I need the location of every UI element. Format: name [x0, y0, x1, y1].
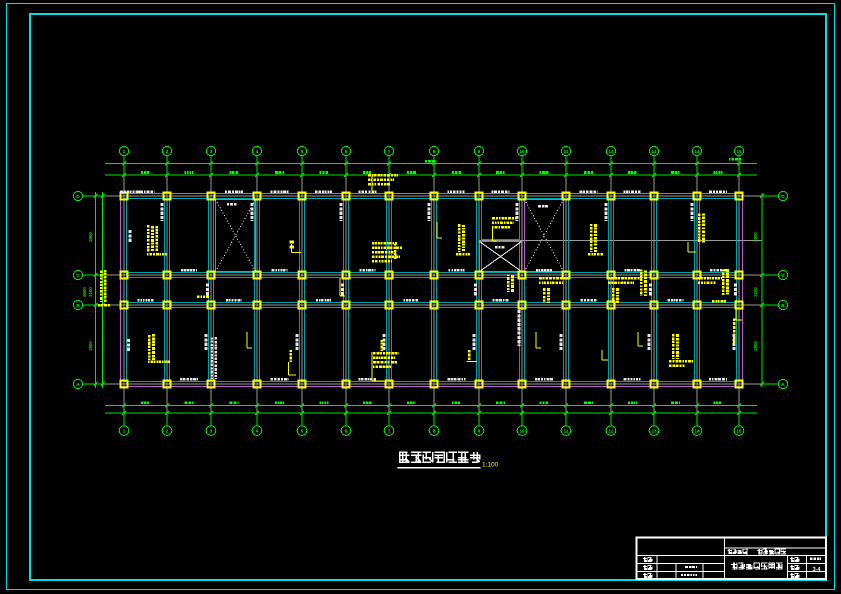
svg-text:2900: 2900 — [88, 341, 93, 351]
svg-text:14: 14 — [694, 429, 700, 434]
svg-text:11: 11 — [564, 429, 569, 434]
svg-text:A: A — [76, 382, 80, 388]
svg-text:2900: 2900 — [88, 232, 93, 242]
svg-text:13: 13 — [651, 149, 657, 154]
svg-text:14: 14 — [694, 149, 700, 154]
svg-text:10: 10 — [519, 149, 525, 154]
svg-text:1:100: 1:100 — [482, 462, 499, 469]
svg-text:15: 15 — [736, 149, 742, 154]
svg-text:10: 10 — [519, 429, 525, 434]
svg-text:2100: 2100 — [753, 287, 758, 297]
svg-text:13: 13 — [651, 429, 657, 434]
svg-text:B: B — [76, 303, 80, 309]
svg-text:3-4: 3-4 — [813, 567, 821, 573]
svg-text:D: D — [781, 194, 785, 200]
svg-text:B: B — [781, 303, 785, 309]
svg-text:C: C — [76, 273, 80, 279]
svg-text:8000: 8000 — [82, 287, 87, 297]
svg-text:2900: 2900 — [753, 341, 758, 351]
svg-text:A: A — [781, 382, 785, 388]
svg-text:D: D — [76, 194, 80, 200]
svg-text:2900: 2900 — [753, 232, 758, 242]
svg-text:2100: 2100 — [88, 287, 93, 297]
svg-text:12: 12 — [608, 149, 614, 154]
svg-text:C: C — [781, 273, 785, 279]
svg-text:11: 11 — [564, 149, 569, 154]
svg-text:15: 15 — [736, 429, 742, 434]
svg-text:12: 12 — [608, 429, 614, 434]
